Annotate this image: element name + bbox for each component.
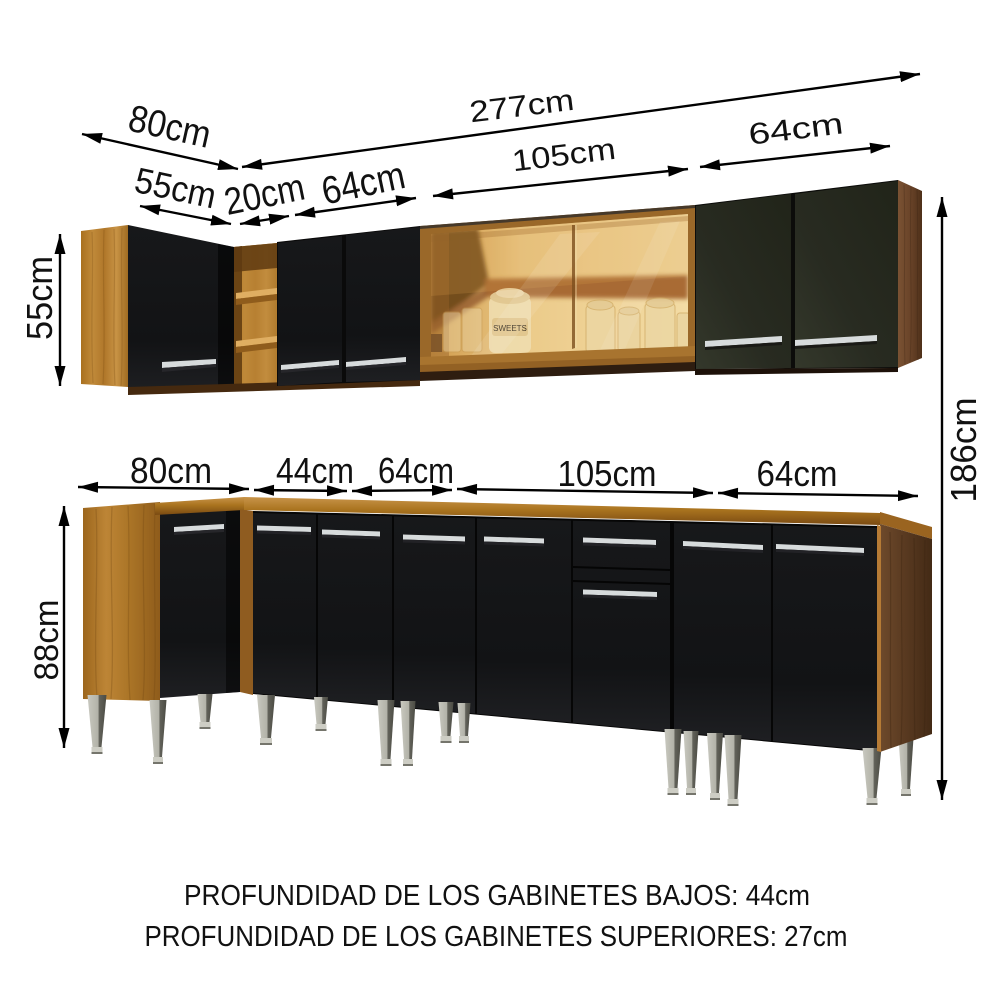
svg-text:186cm: 186cm: [943, 398, 984, 503]
svg-text:55cm: 55cm: [19, 256, 60, 340]
svg-text:105cm: 105cm: [510, 133, 617, 178]
svg-text:80cm: 80cm: [125, 98, 215, 157]
svg-text:44cm: 44cm: [276, 450, 354, 491]
svg-text:PROFUNDIDAD DE LOS GABINETES S: PROFUNDIDAD DE LOS GABINETES SUPERIORES:…: [145, 921, 848, 953]
svg-text:64cm: 64cm: [318, 154, 409, 214]
svg-text:64cm: 64cm: [378, 450, 454, 491]
svg-text:PROFUNDIDAD DE LOS GABINETES B: PROFUNDIDAD DE LOS GABINETES BAJOS: 44cm: [184, 880, 810, 912]
svg-text:80cm: 80cm: [130, 450, 212, 491]
svg-text:64cm: 64cm: [747, 107, 845, 151]
svg-text:105cm: 105cm: [558, 453, 657, 494]
svg-text:88cm: 88cm: [28, 600, 66, 681]
svg-text:64cm: 64cm: [757, 453, 838, 494]
